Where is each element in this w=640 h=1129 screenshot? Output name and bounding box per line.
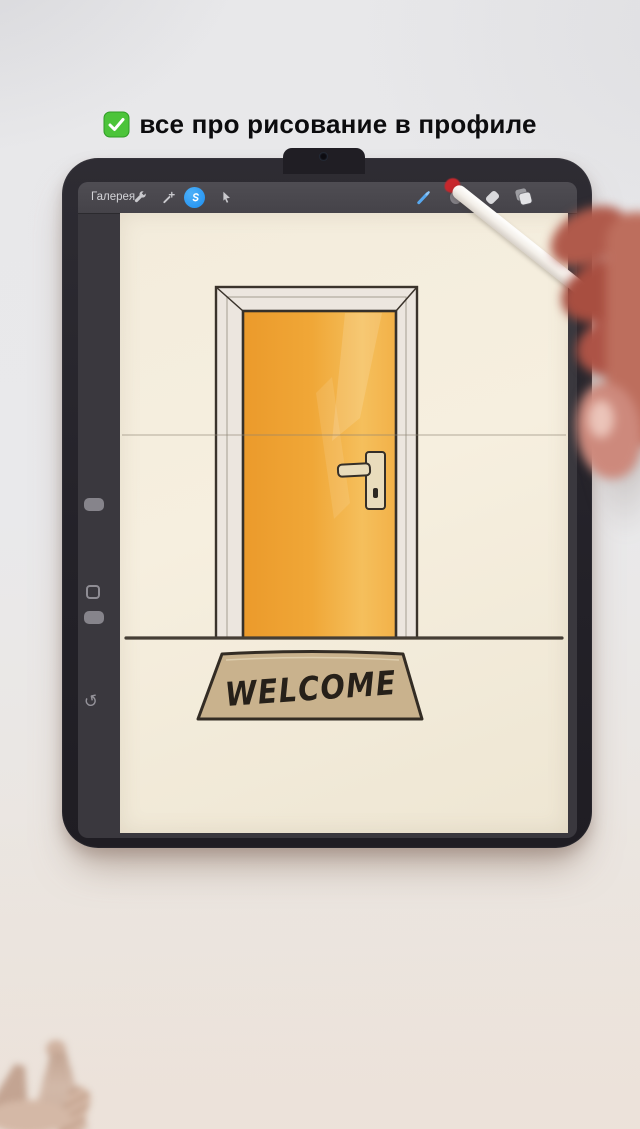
transform-arrow-icon[interactable] (216, 187, 236, 207)
smudge-icon[interactable] (445, 187, 465, 207)
procreate-screen: Галерея (78, 182, 577, 838)
tassel-knot (46, 1040, 66, 1058)
tassel (30, 1052, 88, 1129)
photo-scene: все про рисование в профиле Галерея (0, 0, 640, 1129)
tassel-braid (54, 1084, 93, 1129)
camera-bump (283, 148, 365, 174)
video-caption: все про рисование в профиле (0, 109, 640, 140)
paint-brush-icon[interactable] (413, 187, 433, 207)
welcome-mat: WELCOME (198, 652, 422, 720)
camera-lens-icon (319, 152, 328, 161)
drawing-canvas[interactable]: WELCOME (120, 213, 568, 833)
caption-text: все про рисование в профиле (139, 109, 536, 140)
ipad: Галерея (62, 158, 592, 848)
eraser-block (484, 189, 500, 205)
check-mark-emoji (103, 111, 130, 138)
opacity-slider[interactable] (84, 611, 104, 624)
modify-button[interactable] (86, 585, 100, 599)
procreate-toolbar: Галерея (78, 182, 577, 213)
smudge-blob (450, 191, 461, 204)
eraser-icon[interactable] (482, 187, 502, 207)
layers-icon[interactable] (514, 187, 534, 207)
tassel (0, 1100, 70, 1129)
keyhole (373, 488, 378, 498)
hand-shadow (584, 268, 640, 538)
undo-button[interactable]: ↺ (82, 691, 100, 714)
actions-wrench-icon[interactable] (130, 187, 150, 207)
tassel (0, 1059, 45, 1129)
layers-front-square (518, 191, 531, 204)
brush-size-slider[interactable] (84, 498, 104, 511)
selection-icon[interactable] (184, 187, 205, 208)
door-sketch: WELCOME (120, 213, 568, 833)
gallery-button[interactable]: Галерея (91, 191, 135, 203)
adjustments-wand-icon[interactable] (158, 187, 178, 207)
